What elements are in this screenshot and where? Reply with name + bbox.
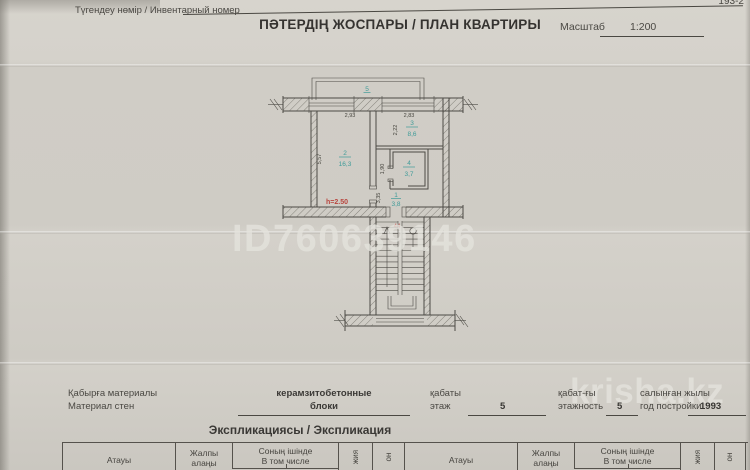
floors-underline (606, 415, 638, 416)
wall-material-label-kz: Қабырға материалы (68, 387, 157, 400)
room-4-number: 4 (407, 160, 411, 167)
wall-material-value-line1: керамзитобетонные (238, 387, 410, 400)
wall-hatch (283, 98, 309, 111)
inventory-number-underline (183, 5, 743, 15)
year-underline (688, 415, 746, 416)
floor-label-ru: этаж (430, 400, 461, 413)
room-3-area: 8,6 (407, 131, 416, 138)
page-title: ПӘТЕРДІҢ ЖОСПАРЫ / ПЛАН КВАРТИРЫ (255, 17, 545, 32)
col-total-line1: Жалпы (176, 448, 232, 458)
col-total-line2: алаңы (518, 458, 574, 468)
floors-labels: қабат-ғы этажность (558, 387, 603, 413)
scan-right-edge-shadow (745, 0, 750, 470)
bathroom-cabin (390, 149, 428, 189)
col-included-left: Соның ішінде В том числе (232, 443, 338, 469)
scale-label: Масштаб (560, 21, 605, 34)
floor-labels: қабаты этаж (430, 387, 461, 413)
col-total-right: Жалпы алаңы (517, 443, 574, 470)
wall-material-value-line2: блоки (238, 400, 410, 413)
col-included-line1: Соның ішінде (233, 446, 338, 456)
dim-hall-depth: 3,35 (376, 193, 382, 204)
rot-label: жия (693, 450, 703, 464)
entrance-door-jamb (402, 207, 406, 217)
col-name-right: Атауы (404, 443, 517, 470)
col-rot1-left: жия (338, 443, 372, 470)
wall-hatch (427, 315, 455, 326)
door-jamb (370, 186, 377, 189)
year-label-kz: салынған жылы (640, 387, 710, 400)
room-3-number: 3 (410, 120, 414, 127)
room-2-area: 16,3 (339, 161, 352, 168)
wall-hatch (443, 98, 449, 217)
scale-value: 1:200 (630, 21, 656, 34)
col-rot2-right: он (714, 443, 746, 470)
dim-living-width: 2,93 (345, 113, 356, 119)
col-included-right: Соның ішінде В том числе (574, 443, 680, 469)
col-total-left: Жалпы алаңы (175, 443, 232, 470)
col-included-line1: Соның ішінде (575, 446, 680, 456)
scale-underline (600, 36, 704, 37)
floors-value: 5 (617, 400, 622, 413)
col-included-line2: В том числе (575, 456, 680, 466)
scan-left-edge-shadow (0, 0, 10, 470)
dim-living-depth: 5,57 (317, 154, 323, 165)
rot-label: жия (351, 450, 361, 464)
wall-material-underline (238, 415, 410, 416)
col-total-line2: алаңы (176, 458, 232, 468)
form-ref: 193-2 (718, 0, 744, 8)
col-name-left: Атауы (62, 443, 175, 470)
dim-bathroom-depth: 1,90 (380, 164, 386, 175)
room-1-area: 3,8 (391, 201, 400, 208)
wall-hatch (345, 315, 373, 326)
floor-plan-svg: 5 (250, 58, 512, 358)
col-total-line1: Жалпы (518, 448, 574, 458)
wall-material-labels: Қабырға материалы Материал стен (68, 387, 157, 413)
listing-id-watermark: ID760639146 (232, 218, 477, 261)
explication-title: Экспликациясы / Экспликация (180, 423, 420, 437)
room-1-number: 1 (394, 192, 398, 199)
col-rot2-left: он (372, 443, 404, 470)
room-2-number: 2 (343, 150, 347, 157)
inventory-number-label: Түгендеу нөмір / Инвентарный номер (75, 4, 240, 17)
rot-label: он (384, 453, 394, 462)
wall-material-label-ru: Материал стен (68, 400, 157, 413)
col-rot1-right: жия (680, 443, 714, 470)
stair-landing (388, 296, 416, 309)
floor-plan: 5 (250, 58, 512, 363)
floors-label-kz: қабат-ғы (558, 387, 603, 400)
wall-hatch (406, 207, 463, 217)
dim-kitchen-width: 2,83 (404, 113, 415, 119)
explication-table: Атауы Жалпы алаңы Соның ішінде В том чис… (62, 442, 748, 470)
entrance-door-jamb (386, 207, 390, 217)
dim-kitchen-depth: 2,22 (393, 125, 399, 136)
wall-hatch (354, 98, 382, 111)
year-value: 1993 (700, 400, 721, 413)
floor-value: 5 (500, 400, 505, 413)
room-4-area: 3,7 (404, 171, 413, 178)
floors-label-ru: этажность (558, 400, 603, 413)
floor-label-kz: қабаты (430, 387, 461, 400)
floor-underline (468, 415, 546, 416)
ceiling-height-note: h=2.50 (326, 199, 348, 206)
wall-hatch (283, 207, 386, 217)
wall-material-value: керамзитобетонные блоки (238, 387, 410, 413)
rot-label: он (725, 453, 735, 462)
scanned-floor-plan-page: Түгендеу нөмір / Инвентарный номер 193-2… (0, 0, 750, 470)
balcony-number: 5 (365, 86, 369, 93)
col-included-line2: В том числе (233, 456, 338, 466)
